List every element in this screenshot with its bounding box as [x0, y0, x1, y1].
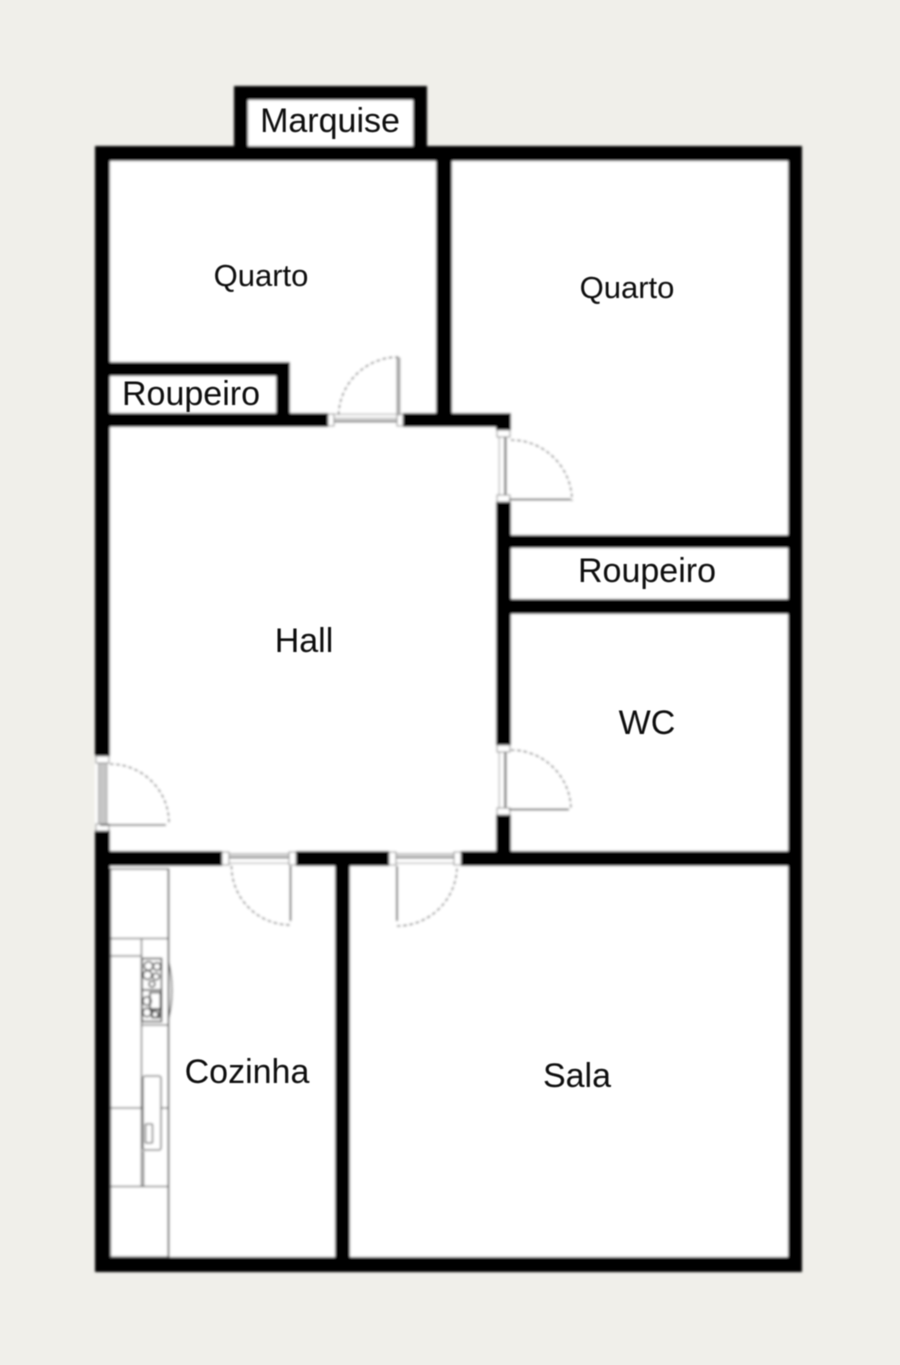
svg-text:Quarto: Quarto [214, 258, 309, 293]
svg-text:Roupeiro: Roupeiro [578, 552, 716, 590]
svg-text:Roupeiro: Roupeiro [122, 375, 260, 413]
svg-text:Quarto: Quarto [580, 270, 675, 305]
svg-text:Sala: Sala [543, 1057, 611, 1095]
svg-text:Marquise: Marquise [260, 102, 400, 140]
svg-text:Hall: Hall [275, 622, 334, 660]
svg-text:WC: WC [619, 704, 676, 742]
svg-text:Cozinha: Cozinha [185, 1053, 310, 1091]
